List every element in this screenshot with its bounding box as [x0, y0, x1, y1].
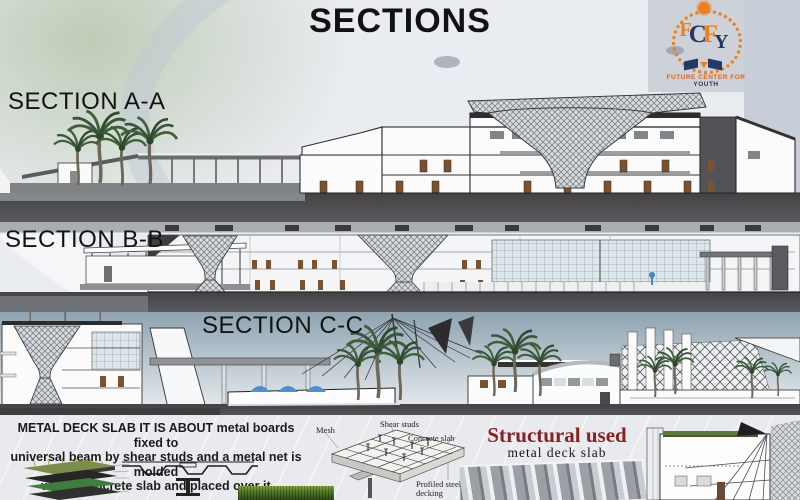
label-concrete-slab: Concrete slab: [408, 433, 455, 443]
green-roof-layers-detail: [15, 458, 130, 500]
corner-section-detail: [645, 420, 800, 500]
structural-subheading: metal deck slab: [472, 445, 642, 461]
deck-profile-drawing: [118, 452, 258, 498]
lightbulb-icon: [698, 2, 710, 14]
presentation-board: SECTIONS FCFY FUTURE CENTER FOR YOUTH: [0, 0, 800, 500]
section-bb-label: SECTION B-B: [5, 226, 164, 254]
label-shear-studs: Shear studs: [380, 419, 419, 429]
logo-letter: F: [679, 11, 691, 49]
label-mesh: Mesh: [316, 425, 335, 435]
section-aa-label: SECTION A-A: [8, 88, 166, 116]
section-cc-drawing: [0, 312, 800, 420]
metal-deck-photo: [459, 459, 646, 500]
section-cc-label: SECTION C-C: [202, 312, 364, 340]
section-aa-drawing: [0, 55, 800, 222]
logo-letters: FCFY: [668, 16, 740, 57]
